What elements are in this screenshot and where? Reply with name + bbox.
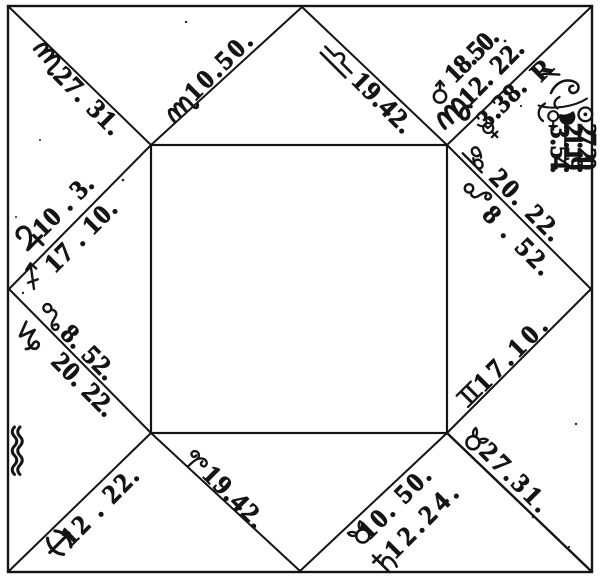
svg-text:3 . 54.: 3 . 54. (545, 125, 575, 173)
